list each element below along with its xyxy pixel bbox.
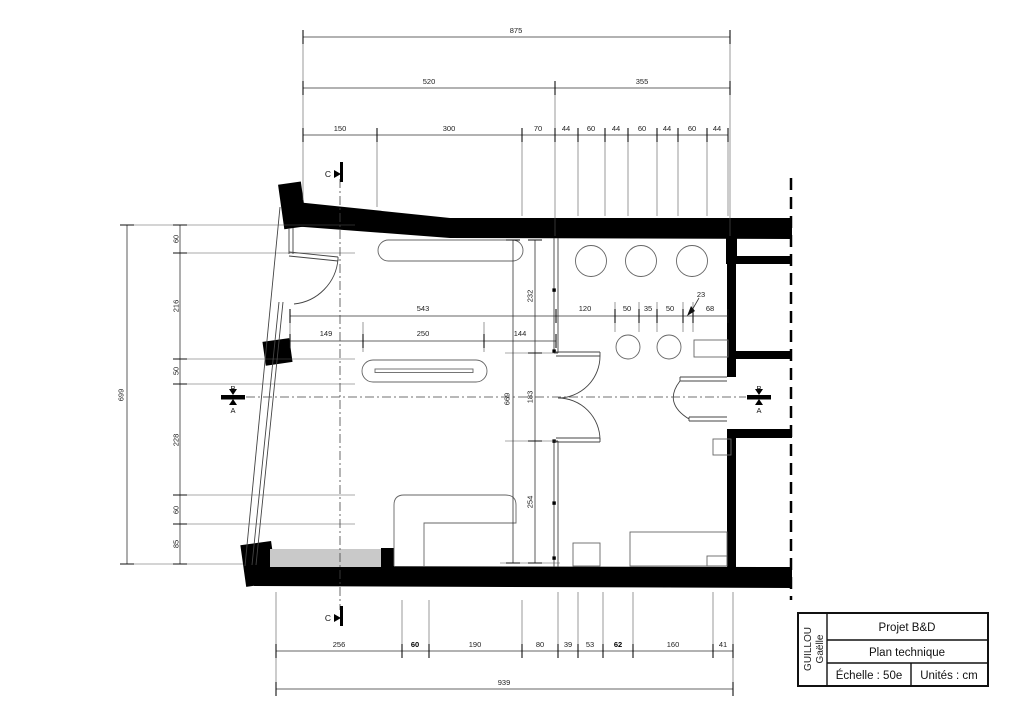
wall-cabinet bbox=[694, 340, 728, 357]
dim-leader-23: 23 bbox=[697, 290, 705, 299]
storefront bbox=[245, 207, 293, 566]
furniture bbox=[270, 240, 731, 567]
mat-right-block bbox=[381, 548, 394, 567]
dim-top-row3-2: 70 bbox=[534, 124, 542, 133]
dim-interior-height-total: 669 bbox=[503, 393, 512, 406]
dim-left-chain-2: 50 bbox=[172, 367, 181, 375]
dim-top-row3-8: 60 bbox=[688, 124, 696, 133]
dim-right-chain-1: 50 bbox=[623, 304, 631, 313]
dim-top-total: 875 bbox=[510, 26, 523, 35]
dim-left-chain-5: 85 bbox=[172, 540, 181, 548]
section-marker-ab-left: B A bbox=[221, 384, 245, 415]
dim-right-chain-3: 50 bbox=[666, 304, 674, 313]
floor-plan-page: 875 520 355 150 300 70 44 60 44 60 44 60… bbox=[0, 0, 1024, 724]
marker-right-a: A bbox=[756, 406, 761, 415]
section-marker-c-top: C bbox=[325, 162, 343, 182]
dim-bottom-chain-1: 60 bbox=[411, 640, 419, 649]
dim-top-row2-1: 355 bbox=[636, 77, 649, 86]
dim-bottom-chain-0: 256 bbox=[333, 640, 346, 649]
round-table-2 bbox=[626, 246, 657, 277]
right-wall-door-jamb bbox=[727, 359, 736, 377]
entry-door-jamb bbox=[289, 228, 293, 254]
title-block: GUILLOU Gaëlle Projet B&D Plan technique… bbox=[798, 613, 988, 686]
bottom-fixture-small bbox=[573, 543, 600, 566]
dim-left-chain-4: 60 bbox=[172, 506, 181, 514]
dim-left-chain-0: 60 bbox=[172, 235, 181, 243]
dim-top-row3-1: 300 bbox=[443, 124, 456, 133]
dim-top-row3-0: 150 bbox=[334, 124, 347, 133]
dim-bottom-chain-7: 160 bbox=[667, 640, 680, 649]
dim-right-chain-2: 35 bbox=[644, 304, 652, 313]
dim-top-row2-0: 520 bbox=[423, 77, 436, 86]
right-wall-stub-b bbox=[727, 429, 792, 438]
title-block-author-first: Gaëlle bbox=[815, 634, 826, 663]
round-table-3 bbox=[677, 246, 708, 277]
dim-top-row3-6: 60 bbox=[638, 124, 646, 133]
right-wall-segment-2 bbox=[727, 438, 736, 568]
entry-door-swing bbox=[294, 259, 338, 304]
top-radiator bbox=[378, 240, 523, 261]
partition-lines bbox=[554, 238, 558, 567]
right-door-leaf bbox=[680, 377, 727, 381]
title-block-units: Unités : cm bbox=[920, 670, 978, 682]
marker-left-a: A bbox=[230, 406, 235, 415]
marker-left-b: B bbox=[230, 384, 235, 393]
doors bbox=[289, 252, 727, 442]
double-door-top-swing bbox=[558, 356, 600, 398]
dim-bottom-chain-3: 80 bbox=[536, 640, 544, 649]
dim-right-chain-0: 120 bbox=[579, 304, 592, 313]
dim-left-chain-3: 228 bbox=[172, 434, 181, 447]
right-door-stop bbox=[689, 417, 727, 421]
dim-bottom-chain-8: 41 bbox=[719, 640, 727, 649]
top-wall bbox=[291, 202, 792, 239]
dim-height-chain-2: 254 bbox=[526, 496, 535, 509]
title-block-project: Projet B&D bbox=[879, 622, 936, 634]
title-block-author-last: GUILLOU bbox=[803, 627, 814, 671]
dim-interior-width-0: 149 bbox=[320, 329, 333, 338]
dim-top-row3-9: 44 bbox=[713, 124, 721, 133]
title-block-drawing-title: Plan technique bbox=[869, 647, 945, 659]
dim-top-row3-7: 44 bbox=[663, 124, 671, 133]
dim-top-row3-4: 60 bbox=[587, 124, 595, 133]
floor-plan-drawing: 875 520 355 150 300 70 44 60 44 60 44 60… bbox=[0, 0, 1024, 724]
section-marker-ab-right: B A bbox=[747, 384, 771, 415]
dim-interior-width-total: 543 bbox=[417, 304, 430, 313]
round-table-1 bbox=[576, 246, 607, 277]
dim-bottom-total: 939 bbox=[498, 678, 511, 687]
dim-interior-width-2: 144 bbox=[514, 329, 527, 338]
dim-bottom-chain-4: 39 bbox=[564, 640, 572, 649]
marker-top-c: C bbox=[325, 169, 331, 179]
right-door-swing bbox=[673, 381, 689, 419]
round-stool-1 bbox=[616, 335, 640, 359]
double-door-bottom-swing bbox=[558, 398, 600, 440]
dim-bottom-chain-5: 53 bbox=[586, 640, 594, 649]
dim-right-chain-4: 68 bbox=[706, 304, 714, 313]
l-shaped-counter bbox=[394, 495, 516, 566]
dim-bottom-chain-2: 190 bbox=[469, 640, 482, 649]
dim-top-row3-3: 44 bbox=[562, 124, 570, 133]
bottom-wall bbox=[254, 566, 792, 588]
dim-interior-width-1: 250 bbox=[417, 329, 430, 338]
entry-door-leaf bbox=[289, 252, 338, 261]
dim-left-chain-1: 216 bbox=[172, 300, 181, 313]
marker-bottom-c: C bbox=[325, 613, 331, 623]
bottom-fixture-notch bbox=[707, 556, 727, 566]
table bbox=[362, 360, 487, 382]
partition-wall bbox=[552, 238, 558, 567]
dim-left-total: 699 bbox=[117, 389, 126, 402]
marker-right-b: B bbox=[756, 384, 761, 393]
round-stool-2 bbox=[657, 335, 681, 359]
entrance-mat bbox=[270, 549, 381, 567]
double-door-top-leaf bbox=[556, 352, 600, 356]
right-wall-stub-a bbox=[727, 351, 792, 359]
dim-top-row3-5: 44 bbox=[612, 124, 620, 133]
title-block-scale: Échelle : 50e bbox=[836, 669, 903, 682]
bottom-fixture-large bbox=[630, 532, 727, 566]
double-door-bottom-leaf bbox=[556, 438, 600, 442]
section-marker-c-bottom: C bbox=[325, 606, 343, 626]
dim-bottom-chain-6: 62 bbox=[614, 640, 622, 649]
dim-height-chain-0: 232 bbox=[526, 290, 535, 303]
